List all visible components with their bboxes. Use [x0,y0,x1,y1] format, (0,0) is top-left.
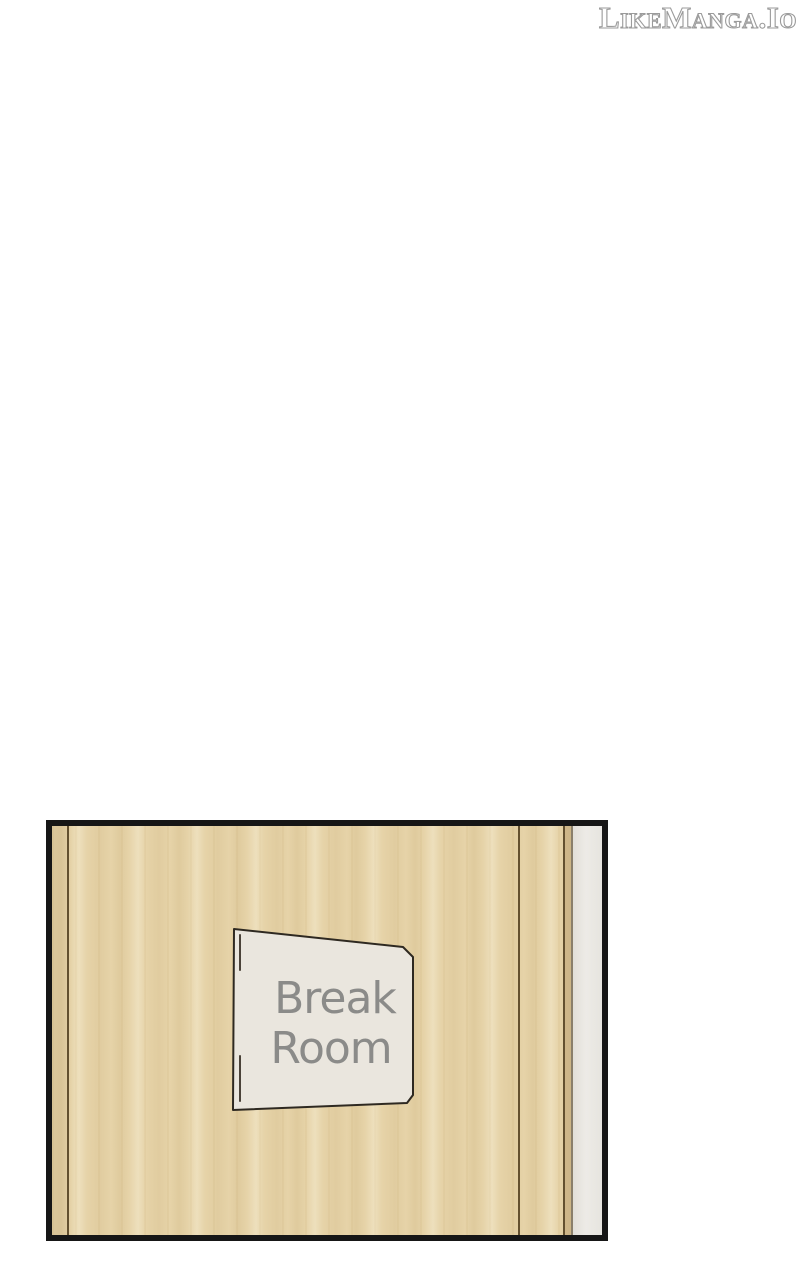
break-room-sign: Break Room [224,920,420,1116]
site-watermark: LikeManga.Io [599,0,797,36]
sign-text-line1: Break [274,973,397,1024]
sign-text-line2: Room [270,1023,391,1074]
wall-strip [571,826,602,1235]
door-groove-left [67,826,69,1235]
comic-panel: Break Room [46,820,608,1241]
door-groove-right1 [518,826,520,1235]
